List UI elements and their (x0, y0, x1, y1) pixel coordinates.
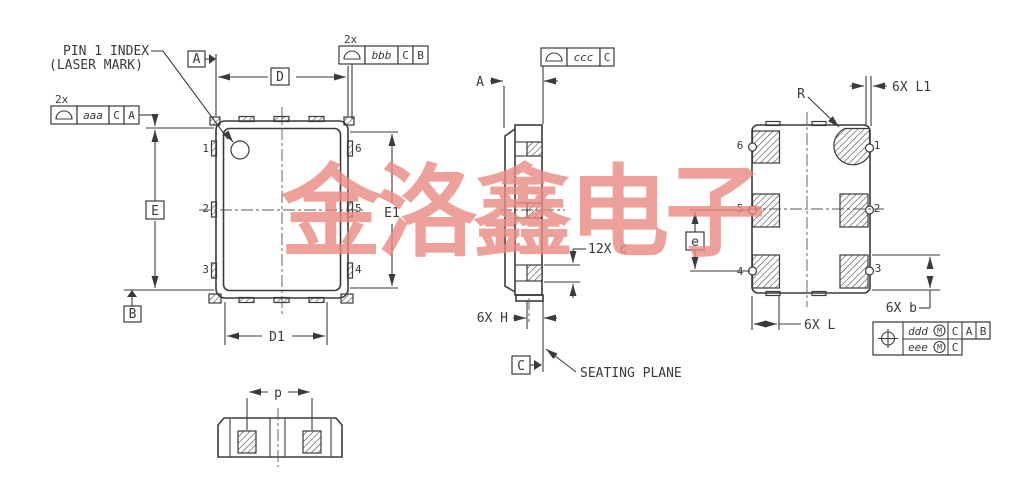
fcf-aaa: 2x aaa C A (51, 93, 155, 126)
datum-flag-C: C (512, 356, 542, 374)
seating-plane-callout: SEATING PLANE (546, 349, 682, 381)
pin-label-1: 1 (202, 142, 209, 155)
edge-notch (866, 267, 874, 275)
pin-label-3: 3 (202, 263, 209, 276)
fcf-pos-row2-d1: C (952, 341, 959, 354)
pin-label-2: 2 (874, 202, 881, 215)
dim-L1: 6X L1 (850, 76, 931, 126)
fcf-aaa-tol: aaa (83, 109, 103, 122)
datum-flag-A: A (188, 51, 216, 67)
fcf-ccc-datum1: C (604, 51, 611, 64)
dim-D: D (216, 54, 348, 116)
fcf-pos-row1-d1: C (952, 325, 959, 338)
fcf-ccc-tol: ccc (574, 51, 594, 64)
dim-L: 6X L (752, 296, 835, 333)
datum-A-label: A (193, 52, 201, 67)
fcf-aaa-datum2: A (128, 109, 135, 122)
fcf-bbb-qty: 2x (344, 33, 358, 46)
dim-E: E (124, 128, 214, 290)
fcf-bbb: 2x bbb C B (339, 33, 428, 119)
dim-D1-label: D1 (269, 330, 285, 345)
pin1-laser-mark-circle (231, 141, 249, 159)
datum-B-label: B (129, 307, 137, 322)
edge-notch (866, 144, 874, 152)
solder-pad (303, 431, 321, 453)
datum-flag-B: B (124, 290, 141, 322)
fcf-bbb-datum2: B (417, 49, 424, 62)
seating-plane-label: SEATING PLANE (580, 366, 682, 381)
fcf-aaa-datum1: C (113, 109, 120, 122)
fcf-bbb-datum1: C (402, 49, 409, 62)
dim-R-label: R (797, 87, 805, 102)
corner-tab (341, 294, 353, 303)
bottom-pad-protrusion (516, 295, 543, 301)
edge-notch (749, 143, 757, 151)
pin-label-3: 3 (875, 262, 882, 275)
fcf-pos-row1-mod: M (937, 327, 942, 336)
pad-1-rounded (834, 129, 870, 165)
dim-b-label: 6X b (886, 301, 917, 316)
pin-label-1: 1 (874, 139, 881, 152)
dim-L-label: 6X L (804, 318, 835, 333)
dim-A-label: A (476, 75, 484, 90)
fcf-bbb-tol: bbb (372, 49, 392, 62)
datum-C-triangle-icon (534, 360, 542, 370)
footprint-body (218, 418, 342, 457)
pin1-index-text: PIN 1 INDEX (63, 44, 149, 59)
fcf-pos-row2-mod: M (937, 343, 942, 352)
datum-A-triangle-icon (209, 54, 216, 64)
dim-p-label: p (274, 386, 282, 401)
pad-2 (840, 194, 868, 227)
fcf-aaa-qty: 2x (55, 93, 69, 106)
solder-pad (238, 431, 256, 453)
edge-notch (866, 206, 874, 214)
pad-3 (840, 255, 868, 288)
dim-H-label: 6X H (477, 311, 508, 326)
dim-E-label: E (151, 204, 159, 219)
datum-B-triangle-icon (127, 290, 137, 297)
pin-label-2: 2 (202, 202, 209, 215)
watermark: 金洛鑫电子 (281, 160, 761, 265)
datum-C-label: C (517, 359, 525, 374)
dim-L1-label: 6X L1 (892, 80, 931, 95)
fcf-pos-row2-tol: eee (908, 341, 928, 354)
fcf-position: ddd M C A B eee M C (873, 322, 990, 355)
fcf-pos-row1-d2: A (966, 325, 973, 338)
dim-D-label: D (276, 70, 284, 85)
fcf-pos-row1-tol: ddd (908, 325, 928, 338)
dim-b: 6X b (872, 255, 940, 316)
laser-mark-text: (LASER MARK) (49, 58, 143, 73)
fcf-pos-row1-d3: B (980, 325, 987, 338)
pin-label-6: 6 (737, 139, 744, 152)
footprint-side-view: p (218, 386, 342, 467)
fcf-ccc: ccc C (541, 48, 614, 66)
dim-D1: D1 (225, 302, 327, 345)
mechanical-drawing-page: 1 2 3 6 5 4 PIN 1 INDEX (LASER MARK) A D… (0, 0, 1036, 477)
